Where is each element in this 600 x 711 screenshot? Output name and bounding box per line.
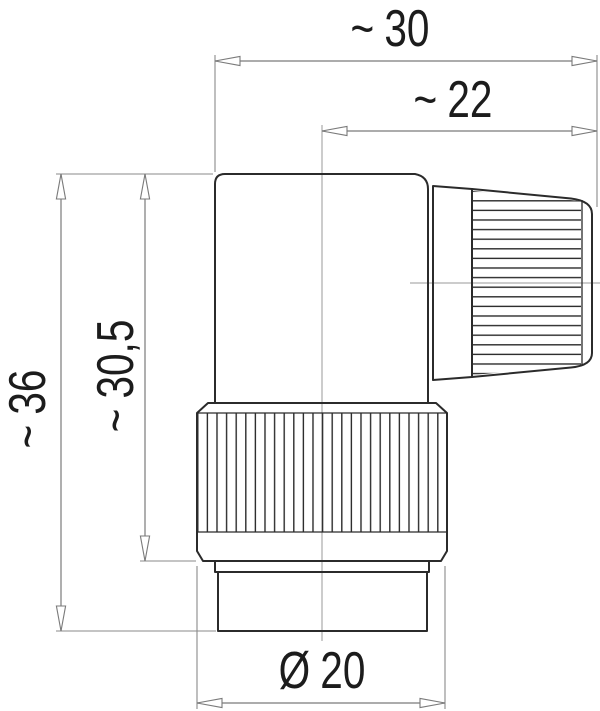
dim-label-ring-diameter: Ø20 bbox=[279, 641, 366, 699]
dim-label-body-height: ~30,5 bbox=[86, 320, 144, 433]
dim-label-gland-width: ~22 bbox=[414, 70, 493, 128]
dim-label-overall-width: ~30 bbox=[351, 0, 430, 57]
connector-outline bbox=[197, 174, 592, 631]
connector-dimension-drawing: ~30 ~22 ~36 ~30,5 Ø20 bbox=[0, 0, 600, 711]
dim-label-overall-height: ~36 bbox=[0, 370, 56, 449]
gland-ribs bbox=[473, 191, 581, 375]
coupling-ring-knurl bbox=[198, 413, 446, 532]
dimension-labels: ~30 ~22 ~36 ~30,5 Ø20 bbox=[0, 0, 492, 699]
technical-drawing-canvas: ~30 ~22 ~36 ~30,5 Ø20 bbox=[0, 0, 600, 711]
